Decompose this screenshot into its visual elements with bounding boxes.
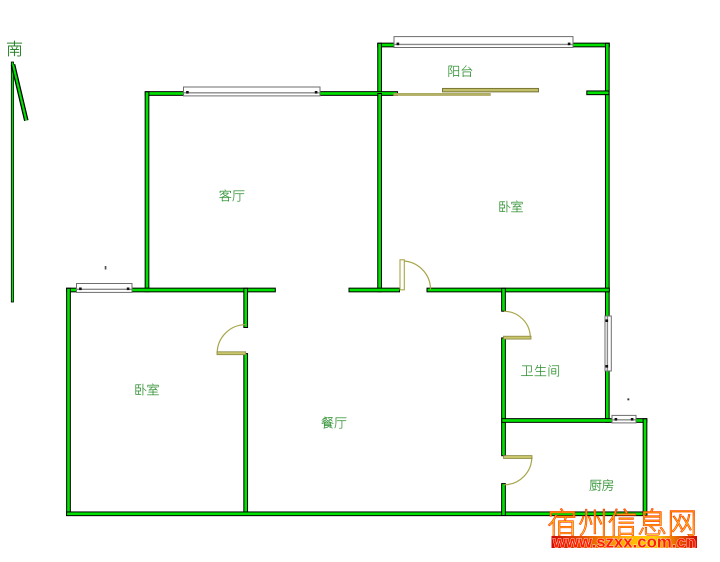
svg-text:www.szxx.com.cn: www.szxx.com.cn bbox=[552, 533, 696, 552]
